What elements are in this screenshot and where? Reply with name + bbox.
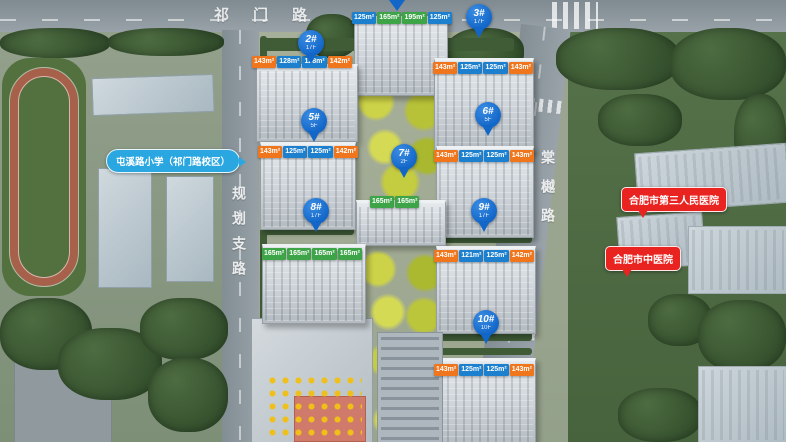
pin-building-8: 8# 17F xyxy=(302,198,330,236)
trees xyxy=(140,298,228,360)
building-1-pin-tip xyxy=(389,0,405,11)
building-9-unit-tags: 143m²121m²125m²142m² xyxy=(434,250,534,262)
hospital-building xyxy=(688,226,786,294)
building-1-unit-tags: 125m²165m²195m²125m² xyxy=(352,12,452,24)
unit-area-tag: 143m² xyxy=(434,250,458,262)
building-10-unit-tags: 143m²125m²125m²143m² xyxy=(434,364,534,376)
kindergarten-tree-dots xyxy=(266,374,362,436)
pin-building-10: 10# 10F xyxy=(472,310,500,348)
building-3-unit-tags: 143m²125m²125m²143m² xyxy=(433,62,533,74)
pin-building-floors: 10F xyxy=(481,325,491,332)
pin-building-id: 2# xyxy=(305,35,316,45)
running-track-ring xyxy=(10,68,78,286)
pin-building-7: 7# 2F xyxy=(390,144,418,182)
pin-tail xyxy=(398,167,410,178)
hedge xyxy=(436,348,532,355)
road-label-right: 棠樾路 xyxy=(538,150,558,237)
unit-area-tag: 165m² xyxy=(370,196,394,208)
school-building xyxy=(166,176,214,282)
site-plan-render: 祁门路 规划支路 棠樾路 屯溪路小学（祁门路校区） 合肥市第三人民医院 合肥市中… xyxy=(0,0,786,442)
trees xyxy=(598,94,682,146)
unit-area-tag: 125m² xyxy=(352,12,376,24)
unit-area-tag: 125m² xyxy=(483,62,507,74)
trees xyxy=(670,28,786,100)
pin-building-id: 5# xyxy=(308,113,319,123)
pin-tail xyxy=(305,53,317,64)
hospital-label-text: 合肥市中医院 xyxy=(613,251,673,266)
unit-area-tag: 165m² xyxy=(377,12,401,24)
pin-building-id: 8# xyxy=(310,203,321,213)
school-label-text: 屯溪路小学（祁门路校区） xyxy=(116,154,230,168)
hospital-label-text: 合肥市第三人民医院 xyxy=(629,192,719,207)
unit-area-tag: 125m² xyxy=(484,364,508,376)
running-track-field xyxy=(2,58,86,296)
pin-tail xyxy=(310,221,322,232)
unit-area-tag: 125m² xyxy=(459,150,483,162)
school-label: 屯溪路小学（祁门路校区） xyxy=(106,149,240,173)
trees xyxy=(618,388,702,442)
unit-area-tag: 143m² xyxy=(258,146,282,158)
trees xyxy=(698,300,786,372)
unit-area-tag: 125m² xyxy=(308,146,332,158)
pin-tail xyxy=(473,27,485,38)
trees xyxy=(556,28,680,90)
pin-building-floors: 17F xyxy=(306,45,316,52)
pin-building-3: 3# 17F xyxy=(465,4,493,42)
building-7-unit-tags: 165m²165m² xyxy=(370,196,419,208)
unit-area-tag: 195m² xyxy=(402,12,426,24)
unit-area-tag: 125m² xyxy=(428,12,452,24)
pin-building-floors: 17F xyxy=(479,213,489,220)
pin-building-id: 3# xyxy=(473,9,484,19)
pin-building-floors: 5F xyxy=(310,123,317,130)
unit-area-tag: 143m² xyxy=(434,150,458,162)
unit-area-tag: 121m² xyxy=(459,250,483,262)
pin-building-floors: 17F xyxy=(311,213,321,220)
pin-building-5: 5# 5F xyxy=(300,108,328,146)
school-building xyxy=(98,168,152,288)
unit-area-tag: 165m² xyxy=(287,248,311,260)
building-5-unit-tags: 143m²125m²125m²142m² xyxy=(258,146,358,158)
unit-area-tag: 165m² xyxy=(262,248,286,260)
pin-building-floors: 5F xyxy=(484,117,491,124)
crosswalk xyxy=(552,2,598,29)
pin-building-9: 9# 17F xyxy=(470,198,498,236)
unit-area-tag: 143m² xyxy=(434,364,458,376)
unit-area-tag: 125m² xyxy=(484,150,508,162)
unit-area-tag: 143m² xyxy=(510,364,534,376)
pin-tail xyxy=(478,221,490,232)
trees xyxy=(0,28,110,58)
unit-area-tag: 143m² xyxy=(510,150,534,162)
hospital-building xyxy=(698,366,786,442)
unit-area-tag: 143m² xyxy=(252,56,276,68)
building-6-unit-tags: 143m²125m²125m²143m² xyxy=(434,150,534,162)
road-label-left: 规划支路 xyxy=(229,186,249,286)
pin-building-id: 6# xyxy=(482,107,493,117)
hospital-label-2: 合肥市中医院 xyxy=(605,246,681,271)
pin-building-id: 10# xyxy=(478,315,495,325)
pin-tail xyxy=(480,333,492,344)
unit-area-tag: 125m² xyxy=(283,146,307,158)
unit-area-tag: 143m² xyxy=(509,62,533,74)
trees xyxy=(148,358,228,432)
road-label-top: 祁门路 xyxy=(214,4,331,25)
pin-building-floors: 17F xyxy=(474,19,484,26)
unit-area-tag: 142m² xyxy=(328,56,352,68)
unit-area-tag: 165m² xyxy=(338,248,362,260)
unit-area-tag: 125m² xyxy=(458,62,482,74)
pin-building-2: 2# 17F xyxy=(297,30,325,68)
unit-area-tag: 125m² xyxy=(459,364,483,376)
school-building xyxy=(91,74,214,116)
unit-area-tag: 143m² xyxy=(433,62,457,74)
unit-area-tag: 165m² xyxy=(312,248,336,260)
pin-building-6: 6# 5F xyxy=(474,102,502,140)
hospital-label-1: 合肥市第三人民医院 xyxy=(621,187,727,212)
building-8-unit-tags: 165m²165m²165m²165m² xyxy=(262,248,362,260)
pin-building-floors: 2F xyxy=(400,159,407,166)
pin-building-id: 7# xyxy=(398,149,409,159)
trees xyxy=(108,28,224,56)
unit-area-tag: 125m² xyxy=(484,250,508,262)
unit-area-tag: 142m² xyxy=(510,250,534,262)
pin-building-id: 9# xyxy=(478,203,489,213)
unit-area-tag: 142m² xyxy=(334,146,358,158)
pin-tail xyxy=(308,131,320,142)
amenity-building xyxy=(377,332,443,442)
pin-tail xyxy=(482,125,494,136)
unit-area-tag: 165m² xyxy=(395,196,419,208)
